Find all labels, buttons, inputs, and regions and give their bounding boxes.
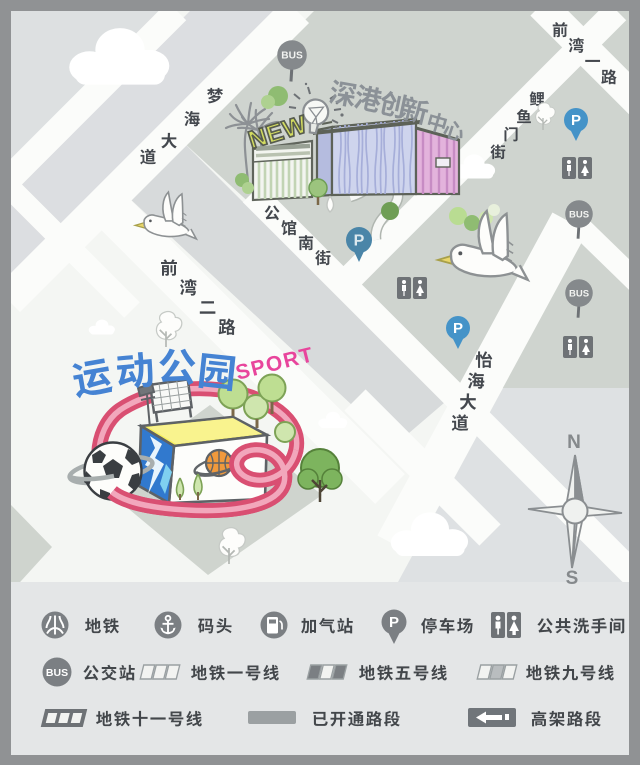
- svg-text:S: S: [566, 568, 579, 589]
- svg-text:BUS: BUS: [46, 667, 68, 679]
- svg-text:BUS: BUS: [569, 288, 589, 299]
- svg-text:P: P: [389, 614, 399, 631]
- svg-text:P: P: [571, 112, 581, 129]
- svg-text:N: N: [567, 432, 581, 453]
- svg-text:BUS: BUS: [281, 51, 303, 62]
- svg-text:BUS: BUS: [569, 209, 589, 220]
- svg-text:P: P: [354, 233, 365, 250]
- svg-text:P: P: [453, 320, 463, 337]
